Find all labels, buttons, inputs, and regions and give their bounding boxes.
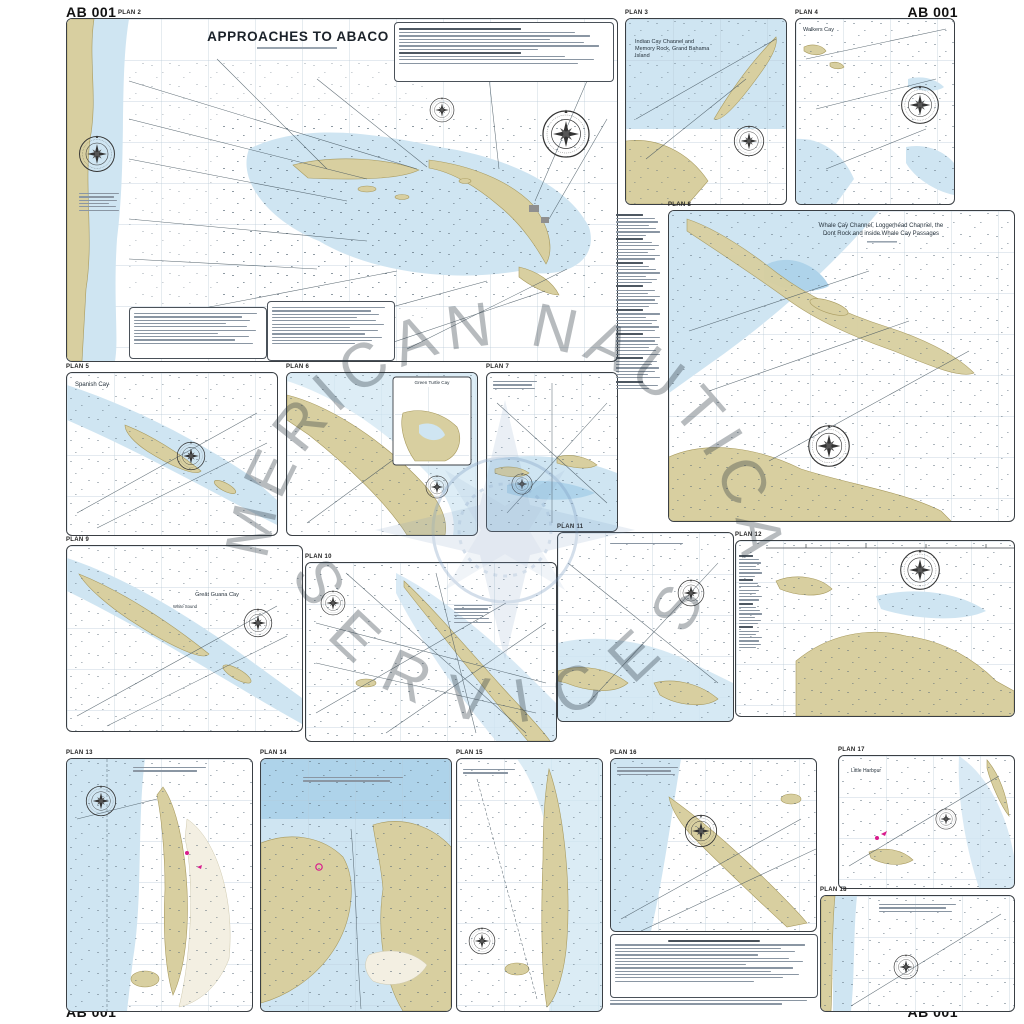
chart-sheet: AB 001 AB 001 AB 001 AB 001 PLAN 2 PLAN … [0, 0, 1024, 1024]
plan2-subtitle-bar [257, 47, 337, 49]
plan4-title: Walkers Cay [803, 27, 834, 33]
plan13-label: PLAN 13 [66, 750, 93, 756]
plan16-label: PLAN 16 [610, 750, 637, 756]
plan2-panel: APPROACHES TO ABACO [66, 18, 618, 362]
waypoint-notes-column [616, 212, 662, 518]
urban-area [529, 205, 539, 212]
plan2-title: APPROACHES TO ABACO [163, 29, 433, 44]
plan11-title-fineprint [610, 541, 686, 547]
plan14-panel [260, 758, 452, 1012]
notice-box [610, 934, 818, 998]
plan15-title-fineprint [463, 767, 517, 777]
plan2-label: PLAN 2 [118, 10, 141, 16]
plan10-label: PLAN 10 [305, 554, 332, 560]
legend-table-right [267, 301, 395, 361]
plan9-label: PLAN 9 [66, 537, 89, 543]
plan6-panel: Green Turtle Cay [286, 372, 478, 536]
plan14-label: PLAN 14 [260, 750, 287, 756]
plan15-label: PLAN 15 [456, 750, 483, 756]
plan8-title-line1: Whale Cay Channel, Loggerhead Channel, t… [819, 223, 944, 229]
legend-table-left [129, 307, 267, 359]
plan3-title-line1: Indian Cay Channel and [635, 39, 694, 45]
plan3-label: PLAN 3 [625, 10, 648, 16]
green-turtle-inset: Green Turtle Cay [393, 377, 471, 465]
plan11-panel [557, 532, 734, 722]
plan6-label: PLAN 6 [286, 364, 309, 370]
plan5-title: Spanish Cay [75, 382, 109, 388]
plan5-label: PLAN 5 [66, 364, 89, 370]
plan5-panel: Spanish Cay [66, 372, 278, 536]
plan8-label: PLAN 8 [668, 202, 691, 208]
plan14-title-fineprint [303, 775, 407, 783]
waypoint-table [394, 22, 614, 82]
plan6-inset-title: Green Turtle Cay [415, 380, 451, 385]
plan7-panel [486, 372, 618, 532]
plan3-title-line3: Island [635, 53, 650, 59]
plan18-panel [820, 895, 1015, 1012]
plan17-title: Little Harbour [851, 768, 881, 774]
plan18-title-fineprint [879, 902, 959, 916]
plan8-title-line2: Dont Rock and inside Whale Cay Passages [823, 231, 939, 237]
plan8-panel: Whale Cay Channel, Loggerhead Channel, t… [668, 210, 1015, 522]
plan15-panel [456, 758, 603, 1012]
plan13-title-fineprint [133, 765, 209, 775]
plan4-label: PLAN 4 [795, 10, 818, 16]
plan12-notes [739, 553, 763, 703]
plan18-label: PLAN 18 [820, 887, 847, 893]
coast-note [79, 191, 121, 217]
notice-footnote [610, 998, 815, 1008]
plan3-panel: Indian Cay Channel and Memory Rock, Gran… [625, 18, 787, 205]
plan11-label: PLAN 11 [557, 524, 583, 530]
plan7-title-fineprint [493, 379, 539, 391]
plan12-panel [735, 540, 1015, 717]
plan16-panel [610, 758, 817, 932]
plan4-panel: Walkers Cay [795, 18, 955, 205]
plan9-panel: Great Guana Cay White Sound [66, 545, 303, 732]
plan7-label: PLAN 7 [486, 364, 509, 370]
plan10-note [454, 603, 494, 629]
plan16-title-fineprint [617, 765, 681, 777]
plan17-panel: Little Harbour [838, 755, 1015, 889]
notice-highlight-bar [668, 940, 759, 942]
plan10-panel [305, 562, 557, 742]
plan17-label: PLAN 17 [838, 747, 865, 753]
plan9-subtitle: White Sound [173, 604, 198, 609]
plan13-panel [66, 758, 253, 1012]
plan3-title-line2: Memory Rock, Grand Bahama [635, 46, 710, 52]
plan12-label: PLAN 12 [735, 532, 762, 538]
plan9-title: Great Guana Cay [195, 592, 239, 598]
